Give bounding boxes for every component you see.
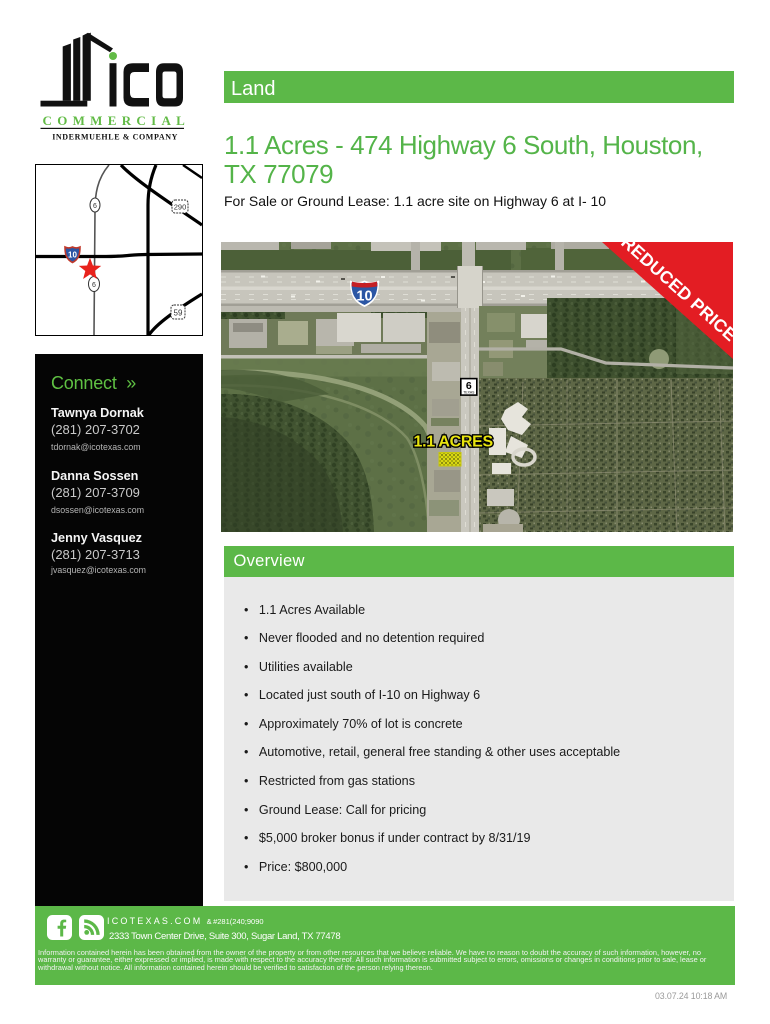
svg-text:10: 10 xyxy=(356,289,372,305)
svg-text:59: 59 xyxy=(174,309,183,318)
svg-text:6: 6 xyxy=(92,282,96,289)
svg-text:1.1 ACRES: 1.1 ACRES xyxy=(414,434,494,451)
svg-text:TEXAS: TEXAS xyxy=(463,391,475,395)
svg-text:10: 10 xyxy=(68,251,77,260)
svg-text:6: 6 xyxy=(93,203,97,210)
svg-text:COMMERCIAL: COMMERCIAL xyxy=(43,113,191,128)
svg-text:290: 290 xyxy=(174,203,187,212)
svg-text:INDERMUEHLE & COMPANY: INDERMUEHLE & COMPANY xyxy=(52,133,178,142)
